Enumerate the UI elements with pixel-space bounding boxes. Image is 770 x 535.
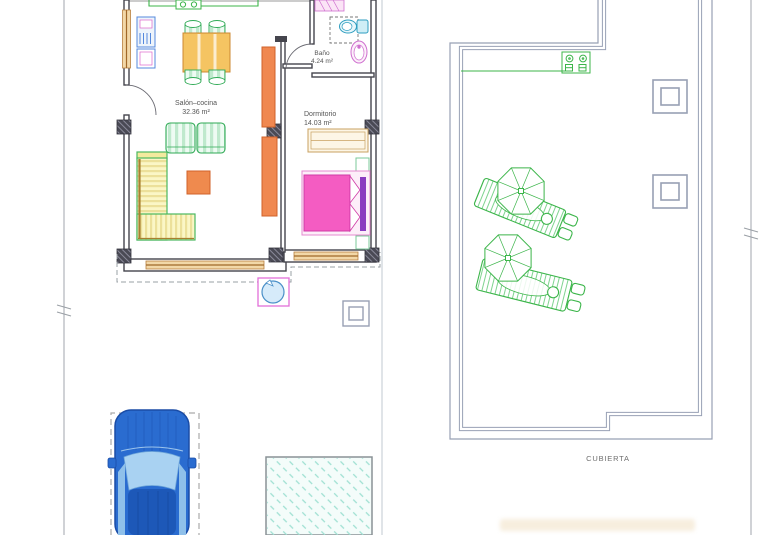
dining-set [183, 21, 230, 85]
room-area: 14.03 m² [304, 120, 364, 129]
dining-table [183, 33, 230, 72]
bedroom [302, 129, 370, 249]
roof-skylight-2 [653, 175, 687, 208]
ground-skylight [343, 301, 369, 326]
nightstand [356, 236, 369, 249]
bed-double [302, 171, 370, 235]
tv-cabinet-lower [262, 137, 277, 216]
room-area: 32.36 m² [146, 109, 246, 118]
house-plan [117, 0, 380, 326]
room-name: Baño [303, 50, 341, 58]
parasol-umbrella-2 [485, 235, 531, 281]
parking-bay [108, 410, 199, 535]
room-name: Salón–cocina [146, 100, 246, 109]
parasol-umbrella-1 [498, 168, 544, 214]
fridge-icon [137, 49, 155, 68]
barbecue-grill-icon [562, 52, 590, 73]
sofa-l-shape [137, 152, 195, 240]
wall-cap [275, 36, 287, 42]
cooktop-icon [176, 0, 201, 9]
room-area: 4.24 m² [303, 58, 341, 66]
wardrobe [308, 129, 368, 152]
car-mirror-right [188, 458, 196, 468]
room-label-dormitorio: Dormitorio 14.03 m² [304, 111, 364, 128]
living-room [137, 47, 277, 240]
floorplan-drawing: Salón–cocina 32.36 m² Dormitorio 14.03 m… [0, 0, 770, 535]
car-side-window-right [179, 463, 186, 535]
swimming-pool [266, 457, 372, 535]
car-top-view [108, 410, 196, 535]
cad-drawing [0, 0, 770, 535]
well-icon [258, 278, 289, 306]
dishwasher-icon [137, 17, 155, 47]
washbasin-icon [351, 41, 367, 63]
room-label-bano: Baño 4.24 m² [303, 50, 341, 66]
nightstand [356, 158, 369, 171]
room-name: Dormitorio [304, 111, 364, 120]
coffee-table [187, 171, 210, 194]
car-mirror-left [108, 458, 116, 468]
toilet-icon [340, 20, 369, 33]
watermark [500, 519, 695, 531]
tv-cabinet-upper [262, 47, 275, 127]
roof-label: CUBIERTA [575, 454, 641, 463]
car-side-window-left [118, 463, 125, 535]
armchair [166, 123, 225, 153]
roof-outer-outline [450, 0, 712, 439]
car-roof [128, 489, 176, 535]
car-windshield [124, 452, 180, 491]
room-label-salon-cocina: Salón–cocina 32.36 m² [146, 100, 246, 117]
shower-icon [315, 0, 344, 11]
roof-skylight-1 [653, 80, 687, 113]
roof-plan [450, 0, 712, 439]
